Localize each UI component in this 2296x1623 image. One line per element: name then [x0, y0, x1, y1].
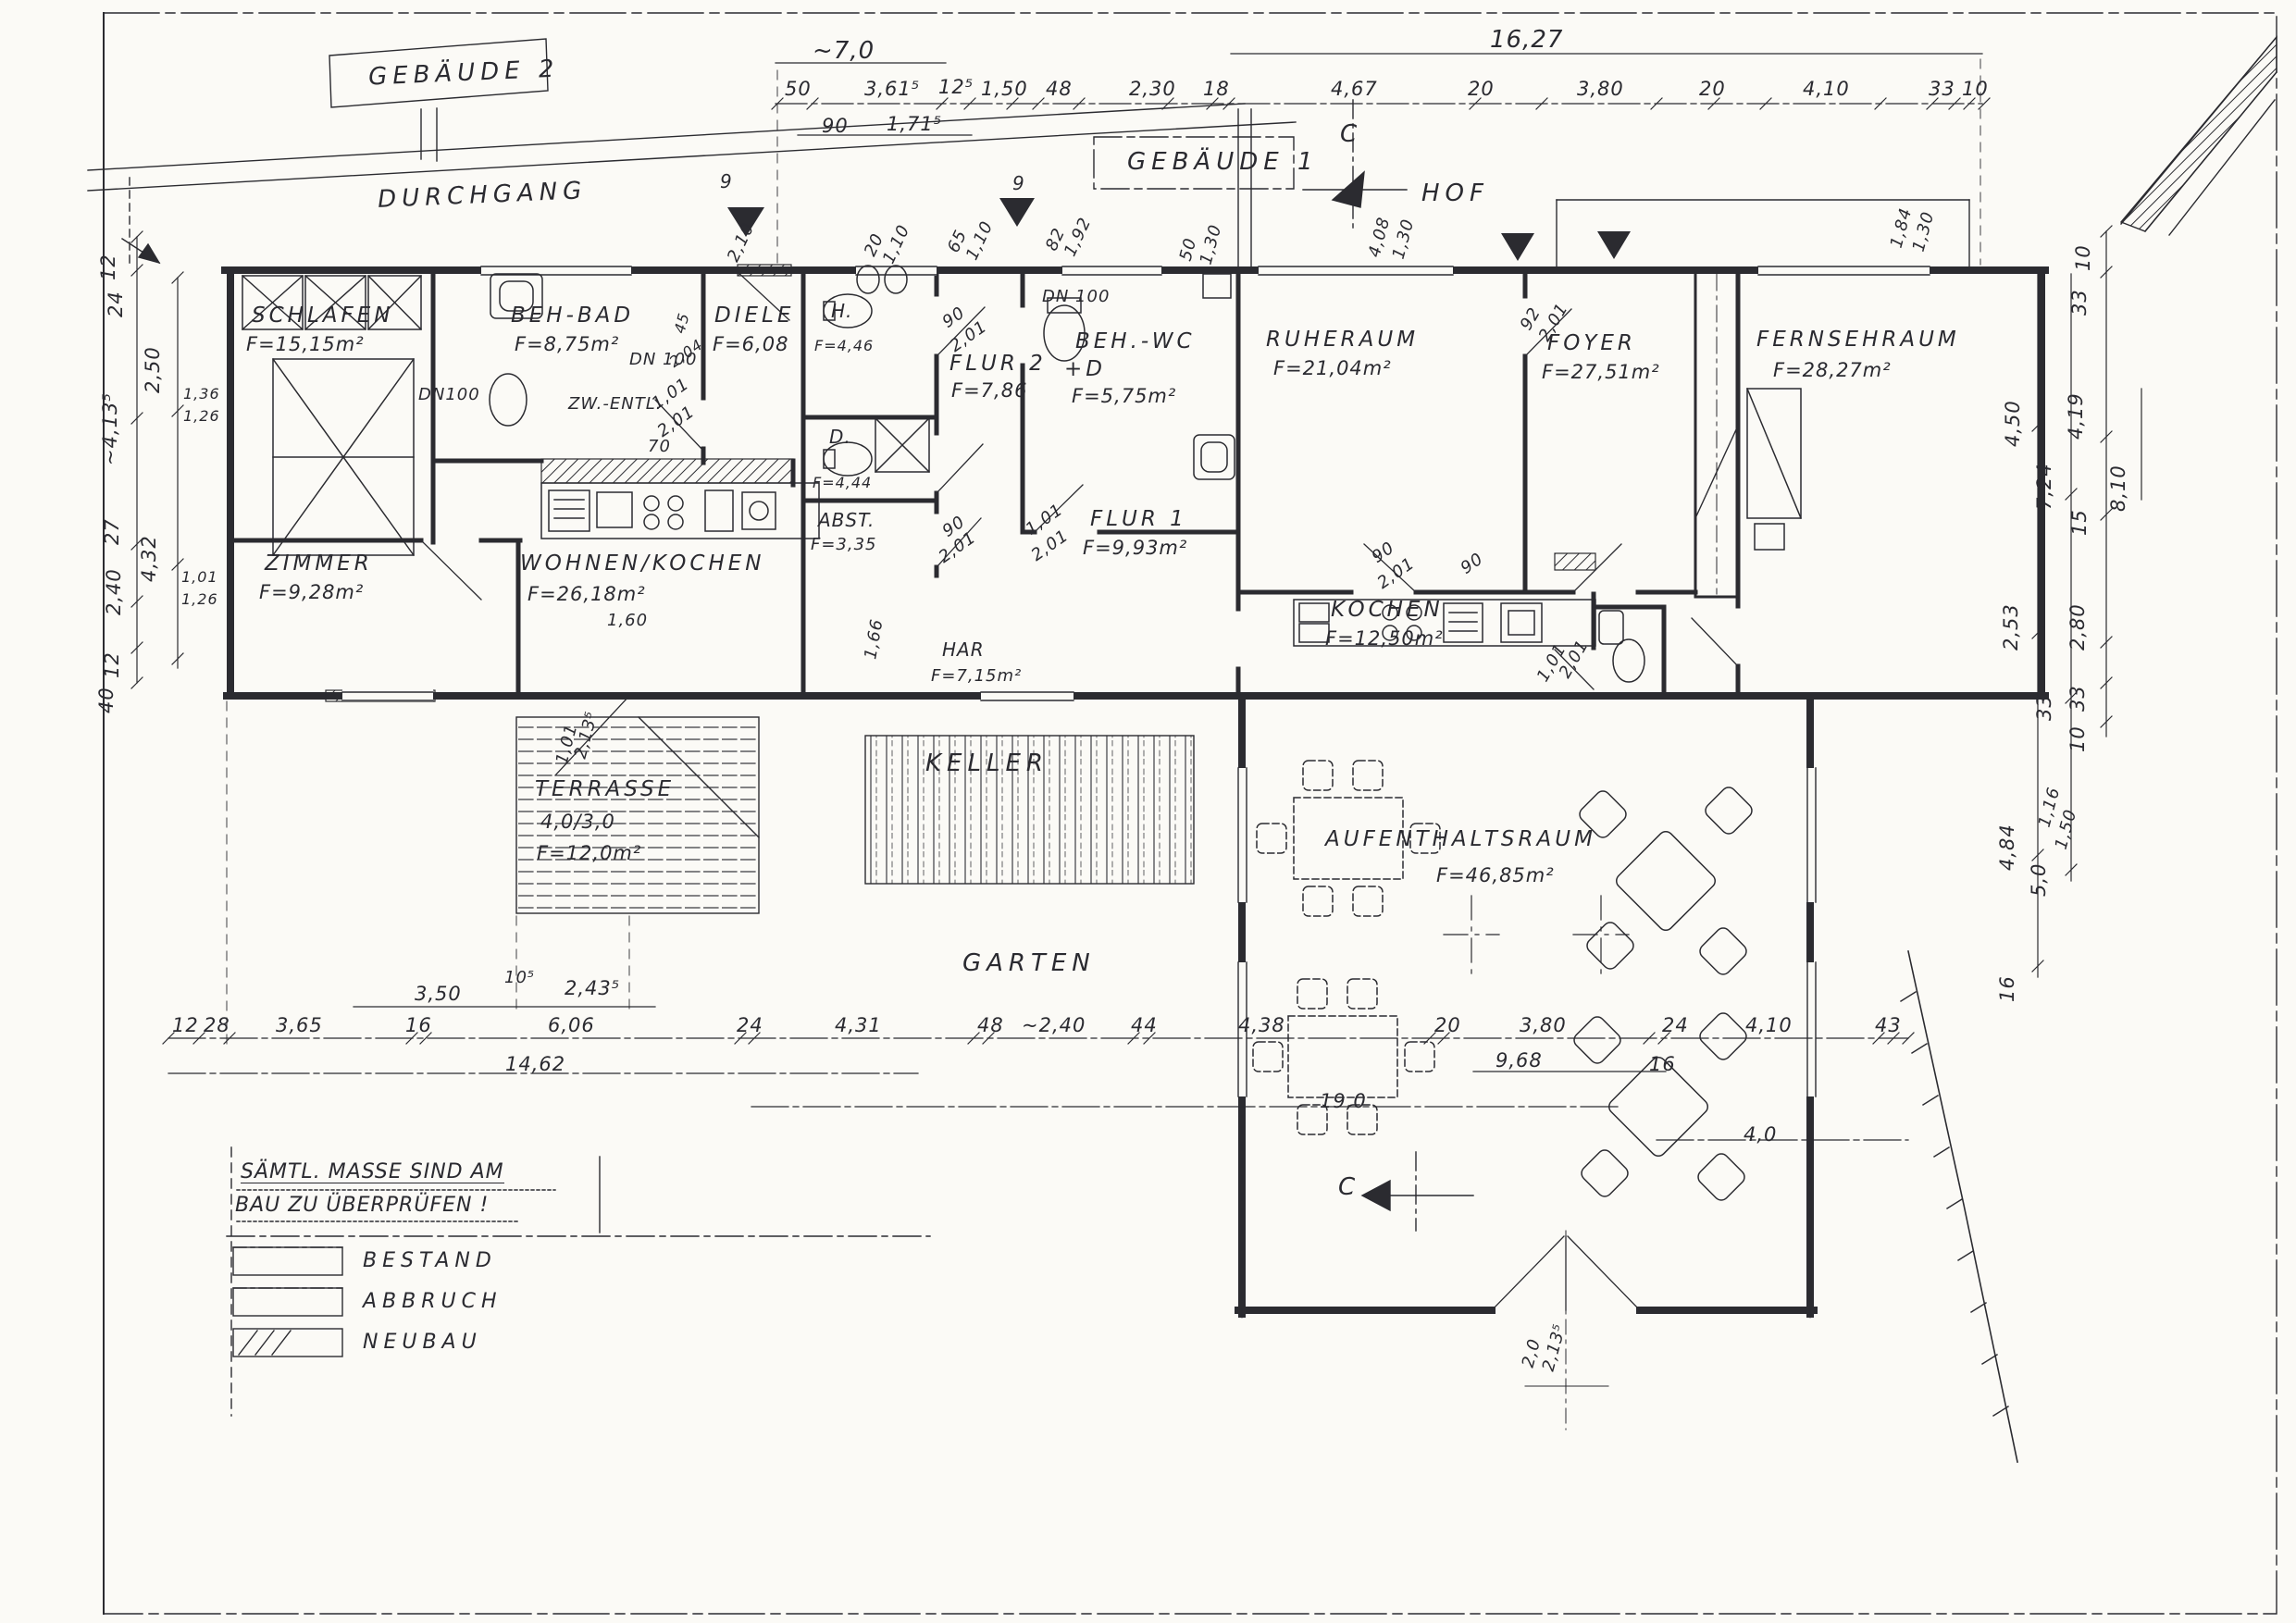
dim: 33	[2070, 289, 2090, 316]
dim: 16	[1649, 1055, 1676, 1074]
terrasse-label: TERRASSE	[535, 779, 675, 800]
keller-label: KELLER	[925, 751, 1049, 775]
hof-label: HOF	[1421, 181, 1489, 205]
room-label-zimmer: ZIMMER	[265, 553, 373, 575]
dim: 24	[737, 1016, 763, 1035]
dim: 43	[1875, 1016, 1902, 1035]
room-area-har: F=7,15m²	[931, 668, 1022, 685]
dim: 3,61⁵	[864, 80, 920, 99]
room-label-flur2: FLUR 2	[949, 353, 1047, 375]
room-area-aufenthaltsraum: F=46,85m²	[1436, 866, 1555, 886]
dim: ~2,40	[1022, 1016, 1086, 1035]
dim: 4,38	[1238, 1016, 1285, 1035]
dim: ~4,13⁵	[101, 392, 120, 465]
dim: 1,36	[183, 387, 220, 402]
dim: 12	[103, 651, 122, 678]
dim: 4,32	[140, 535, 159, 582]
dim: 20	[1434, 1016, 1461, 1035]
dim: 33	[2068, 685, 2088, 712]
legend-label-bestand: BESTAND	[363, 1251, 497, 1271]
dim: 7,24	[2035, 463, 2054, 510]
room-area-foyer: F=27,51m²	[1542, 363, 1660, 382]
room-label-har: HAR	[942, 640, 985, 659]
floor-plan-sheet: GEBÄUDE 2 GEBÄUDE 1 DURCHGANG HOF GARTEN…	[0, 0, 2296, 1623]
room-label-ruheraum: RUHERAUM	[1266, 329, 1419, 351]
room-label-foyer: FOYER	[1547, 333, 1636, 354]
dim: 10	[2068, 725, 2088, 752]
dim: 9,68	[1496, 1051, 1543, 1071]
room-label-wohnen: WOHNEN/KOCHEN	[520, 553, 765, 575]
room-area-behwc: F=5,75m²	[1072, 387, 1176, 406]
dim: 2,80	[2068, 603, 2088, 650]
terrasse-area: F=12,0m²	[537, 844, 641, 863]
section-label-bottom: C	[1338, 1175, 1356, 1199]
section-label-top: C	[1340, 122, 1358, 146]
room-area-kochen: F=12,50m²	[1325, 629, 1444, 649]
ann-drain-9: 9	[720, 172, 733, 191]
dim: 12⁵	[938, 78, 974, 97]
room-label-behbad: BEH-BAD	[511, 305, 634, 327]
dim: 4,67	[1331, 80, 1378, 99]
ann-pipe: DN 100	[1042, 289, 1110, 305]
floor-plan-drawing	[0, 0, 2296, 1623]
gebaeude1-label: GEBÄUDE 1	[1127, 150, 1318, 174]
room-area-diele: F=6,08	[713, 335, 788, 354]
room-label-abst: ABST.	[818, 511, 875, 529]
room-area-flur1: F=9,93m²	[1083, 539, 1187, 558]
room-label-fernsehraum: FERNSEHRAUM	[1756, 329, 1960, 351]
chimney	[1747, 389, 1801, 550]
dim: 3,80	[1577, 80, 1624, 99]
room-area-fernsehraum: F=28,27m²	[1773, 361, 1892, 380]
dim: 4,10	[1803, 80, 1850, 99]
legend-graphics	[227, 1147, 930, 1416]
dim: 2,50	[143, 346, 163, 393]
room-area-flur2: F=7,86	[951, 381, 1027, 401]
room-area-h: F=4,46	[814, 339, 874, 353]
dim: 5,0	[2029, 863, 2049, 897]
legend-swatch-neubau	[233, 1329, 342, 1357]
room-label-aufenthaltsraum: AUFENTHALTSRAUM	[1325, 829, 1596, 850]
note-line2: BAU ZU ÜBERPRÜFEN !	[235, 1196, 489, 1216]
ann-dim: 70	[648, 439, 671, 455]
dim: 28	[204, 1016, 230, 1035]
dim: 4,31	[835, 1016, 882, 1035]
dim: 2,43⁵	[565, 979, 620, 998]
stair-strip	[1695, 270, 1738, 597]
dim: 12	[99, 254, 118, 280]
dim: 40	[97, 687, 117, 713]
dim: 1,26	[183, 409, 220, 424]
dim: 2,40	[105, 568, 124, 615]
dim: 3,65	[276, 1016, 323, 1035]
room-area-abst: F=3,35	[811, 537, 877, 553]
dimension-lines	[131, 54, 2141, 1318]
terrasse-dims: 4,0/3,0	[540, 812, 615, 832]
dim: 18	[1203, 80, 1230, 99]
dim: 50	[785, 80, 812, 99]
dim: 16	[405, 1016, 432, 1035]
kitchen-counter-wohnen	[541, 483, 819, 539]
note-line1: SÄMTL. MASSE SIND AM	[241, 1162, 504, 1183]
dim: 20	[1468, 80, 1495, 99]
dim-overall-right: 16,27	[1490, 28, 1563, 52]
room-area-schlafen: F=15,15m²	[246, 335, 365, 354]
dim: 19,0	[1320, 1092, 1367, 1111]
dim: 33	[2035, 694, 2054, 721]
room-area-ruheraum: F=21,04m²	[1273, 359, 1392, 378]
dim: 1,26	[181, 592, 218, 607]
dim: 2,30	[1129, 80, 1176, 99]
dim: 4,0	[1744, 1125, 1777, 1145]
ann-pipe: DN100	[418, 387, 480, 403]
room-label-behwc2: +D	[1064, 359, 1106, 380]
dim: 90	[822, 117, 849, 136]
legend-swatch-bestand	[233, 1247, 342, 1275]
dim: 12	[172, 1016, 199, 1035]
room-label-d: D.	[829, 427, 851, 446]
room-label-flur1: FLUR 1	[1090, 509, 1187, 530]
dim: 20	[1699, 80, 1726, 99]
legend-label-abbruch: ABBRUCH	[363, 1292, 503, 1312]
room-label-h: H.	[831, 302, 852, 320]
dim: 6,06	[548, 1016, 595, 1035]
dim: 4,19	[2066, 392, 2086, 440]
legend-label-neubau: NEUBAU	[363, 1332, 482, 1353]
dim: 14,62	[505, 1055, 565, 1074]
dim: 33	[1929, 80, 1955, 99]
dim: 24	[106, 291, 126, 317]
dim: 27	[103, 518, 122, 545]
ann-vent: ZW.-ENTL.	[568, 396, 662, 413]
tables-left	[1253, 761, 1440, 1134]
room-area-wohnen: F=26,18m²	[527, 585, 646, 604]
dim: 44	[1131, 1016, 1158, 1035]
dim: 16	[1998, 975, 2017, 1002]
dim: 4,50	[2004, 400, 2023, 447]
dim: 2,53	[2002, 603, 2021, 650]
dim: 1,71⁵	[887, 115, 942, 134]
dim: 1,01	[181, 570, 218, 585]
dim: 10	[2074, 244, 2093, 271]
room-label-behwc: BEH.-WC	[1075, 331, 1196, 353]
dim: 4,10	[1745, 1016, 1793, 1035]
room-area-d: F=4,44	[813, 476, 872, 490]
garten-label: GARTEN	[962, 951, 1096, 975]
dim: 10	[1962, 80, 1989, 99]
room-label-kochen: KOCHEN	[1331, 600, 1444, 621]
room-area-behbad: F=8,75m²	[515, 335, 619, 354]
room-area-zimmer: F=9,28m²	[259, 583, 364, 602]
dim: 1,50	[981, 80, 1028, 99]
room-label-schlafen: SCHLAFEN	[252, 305, 393, 327]
dim: 24	[1662, 1016, 1689, 1035]
dim: 3,80	[1520, 1016, 1567, 1035]
dim: 3,50	[415, 985, 462, 1004]
dim: 8,10	[2109, 465, 2128, 512]
ann-drain-9b: 9	[1012, 174, 1025, 192]
dim: 48	[1046, 80, 1073, 99]
legend-swatch-abbruch	[233, 1288, 342, 1316]
ann-dim: 1,60	[607, 613, 648, 629]
small-wc-fixtures	[1599, 611, 1644, 682]
dim: 10⁵	[504, 970, 535, 986]
dim: 15	[2070, 509, 2090, 536]
dim-overall-left: ~7,0	[813, 39, 875, 63]
room-label-diele: DIELE	[714, 305, 794, 327]
dim: 4,84	[1998, 824, 2017, 871]
dim: 48	[977, 1016, 1004, 1035]
